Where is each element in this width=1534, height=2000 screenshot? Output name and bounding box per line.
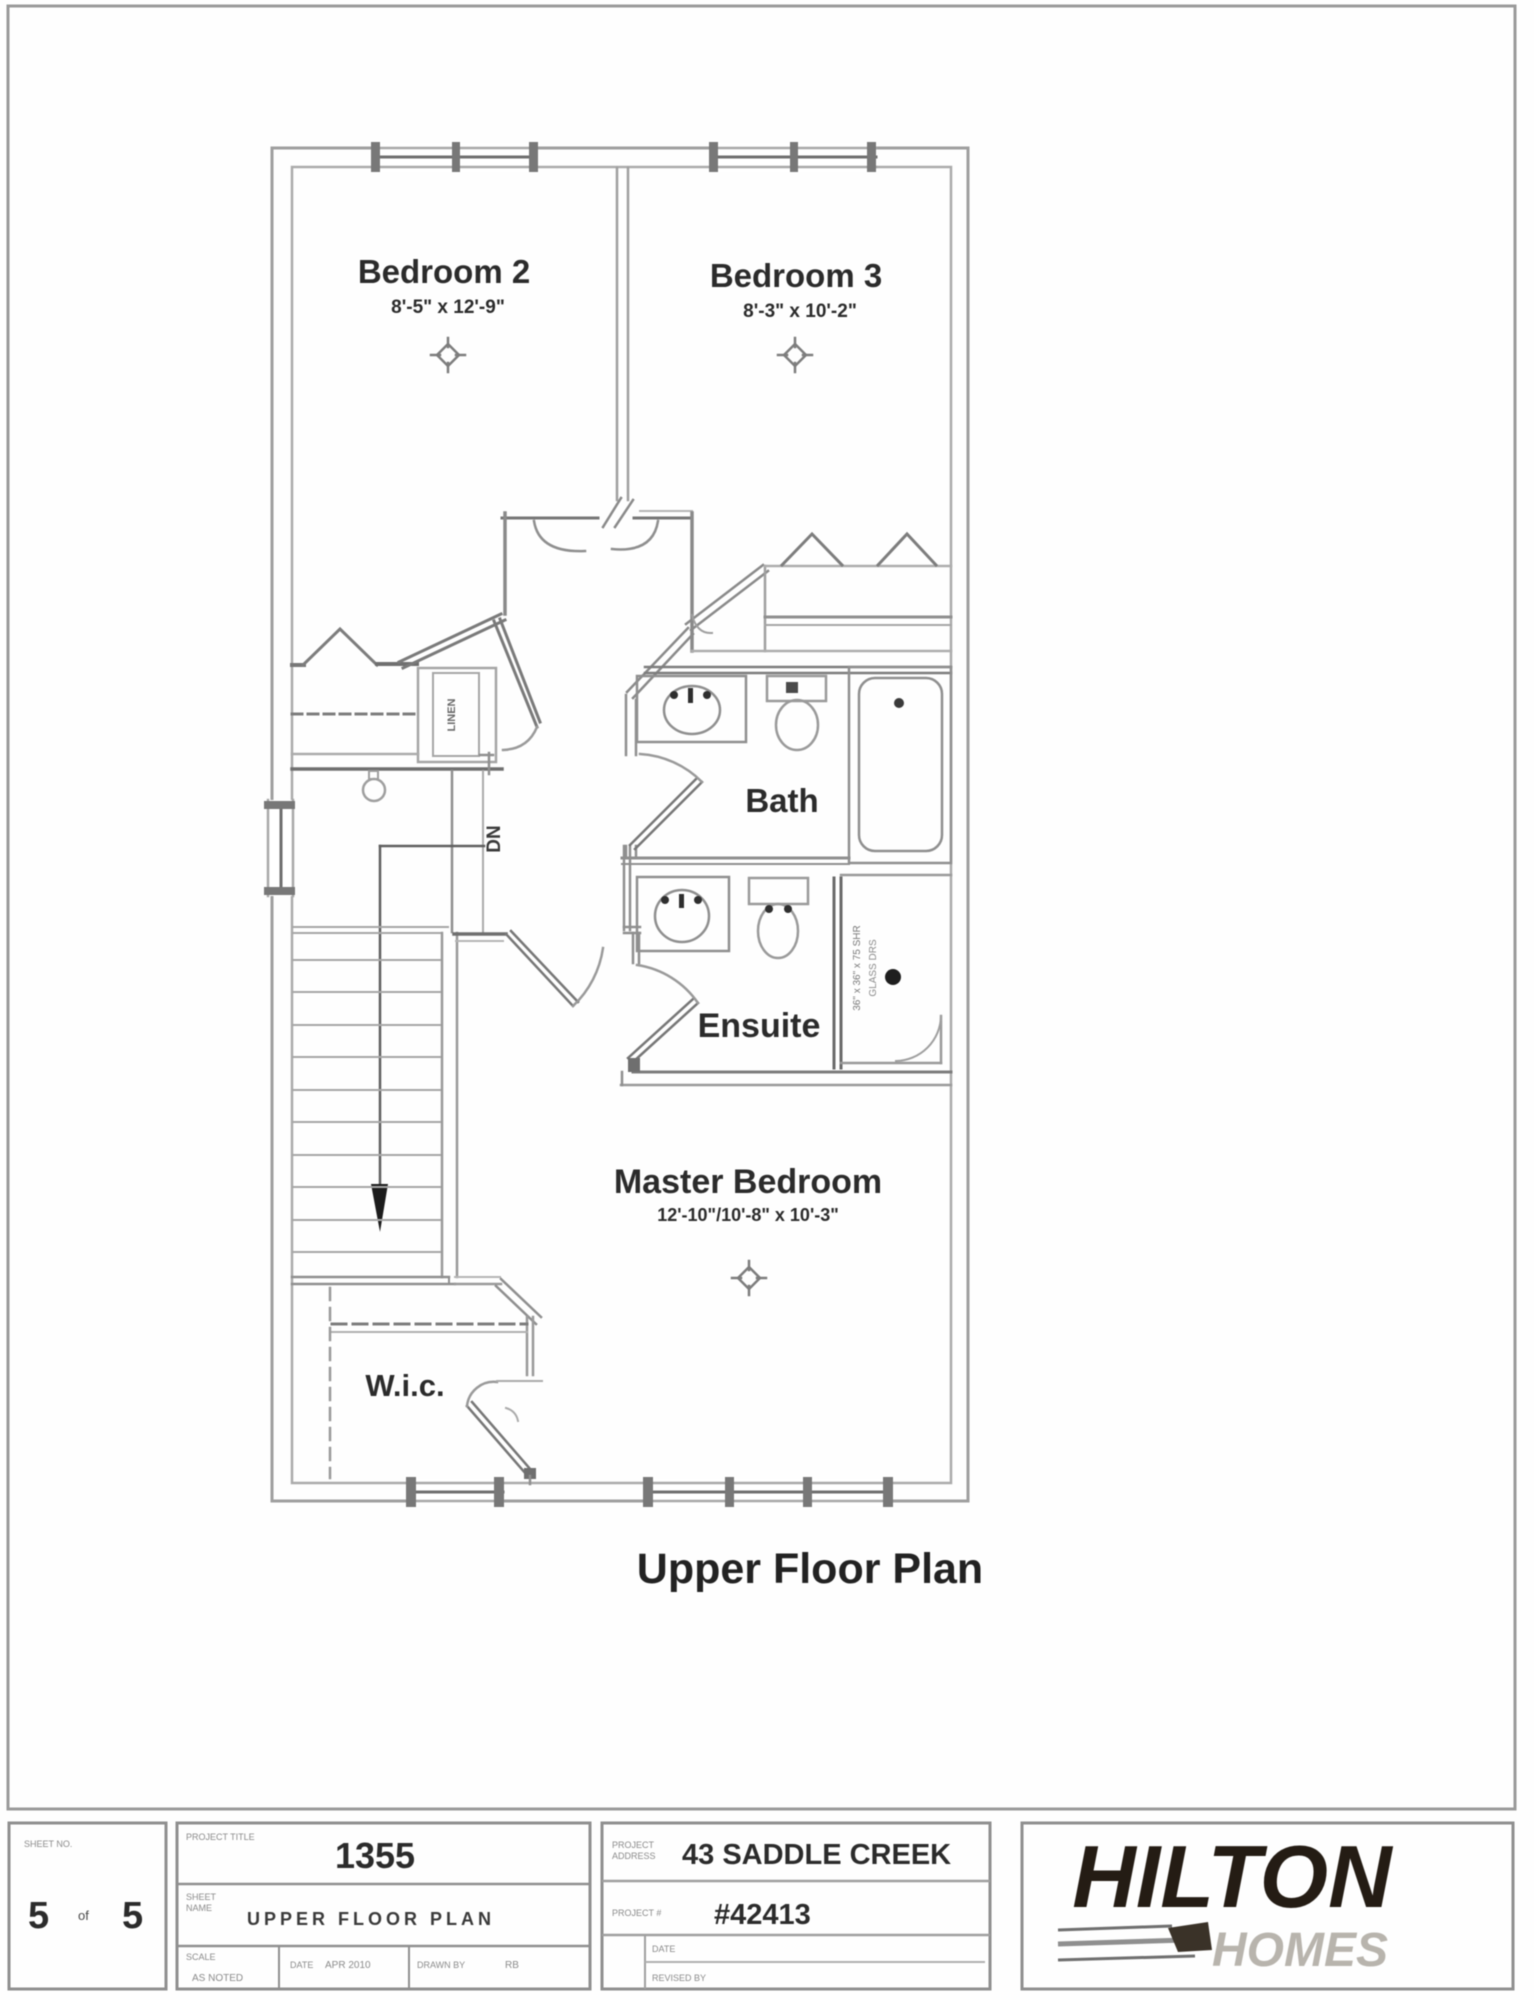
svg-text:8'-5" x 12'-9": 8'-5" x 12'-9": [391, 297, 505, 318]
svg-text:GLASS DRS: GLASS DRS: [868, 939, 879, 997]
svg-text:Master Bedroom: Master Bedroom: [614, 1163, 882, 1201]
svg-text:PROJECT: PROJECT: [612, 1840, 655, 1850]
svg-text:APR 2010: APR 2010: [325, 1960, 371, 1971]
svg-text:HOMES: HOMES: [1212, 1924, 1388, 1977]
svg-text:#42413: #42413: [714, 1899, 811, 1931]
svg-text:W.i.c.: W.i.c.: [365, 1368, 444, 1403]
svg-text:of: of: [78, 1908, 89, 1923]
svg-text:5: 5: [28, 1895, 49, 1937]
svg-text:NAME: NAME: [186, 1903, 212, 1913]
svg-text:Bedroom 2: Bedroom 2: [358, 253, 530, 290]
svg-text:PROJECT #: PROJECT #: [612, 1908, 661, 1918]
svg-text:12'-10"/10'-8" x 10'-3": 12'-10"/10'-8" x 10'-3": [657, 1205, 839, 1225]
svg-text:SHEET NO.: SHEET NO.: [24, 1839, 72, 1849]
svg-text:1355: 1355: [335, 1835, 415, 1876]
svg-text:LINEN: LINEN: [446, 698, 458, 731]
svg-text:SCALE: SCALE: [186, 1952, 216, 1962]
svg-text:43 SADDLE CREEK: 43 SADDLE CREEK: [682, 1839, 951, 1871]
svg-text:Ensuite: Ensuite: [698, 1007, 821, 1045]
svg-text:5: 5: [122, 1895, 143, 1937]
svg-text:SHEET: SHEET: [186, 1892, 217, 1902]
svg-text:8'-3" x 10'-2": 8'-3" x 10'-2": [743, 301, 857, 322]
svg-text:Upper Floor Plan: Upper Floor Plan: [637, 1545, 983, 1593]
svg-text:Bedroom 3: Bedroom 3: [710, 257, 882, 294]
svg-text:UPPER FLOOR PLAN: UPPER FLOOR PLAN: [247, 1909, 495, 1929]
svg-text:PROJECT TITLE: PROJECT TITLE: [186, 1832, 255, 1842]
svg-text:DATE: DATE: [652, 1944, 675, 1954]
svg-text:AS NOTED: AS NOTED: [192, 1973, 243, 1984]
svg-text:DRAWN BY: DRAWN BY: [417, 1960, 465, 1970]
svg-text:REVISED BY: REVISED BY: [652, 1973, 706, 1983]
svg-text:HILTON: HILTON: [1072, 1827, 1394, 1926]
svg-text:36" x 36" x 75 SHR: 36" x 36" x 75 SHR: [852, 925, 863, 1010]
svg-text:RB: RB: [505, 1960, 519, 1971]
svg-text:DN: DN: [484, 825, 505, 852]
svg-text:Bath: Bath: [745, 782, 818, 819]
svg-text:DATE: DATE: [290, 1960, 313, 1970]
svg-text:ADDRESS: ADDRESS: [612, 1851, 656, 1861]
